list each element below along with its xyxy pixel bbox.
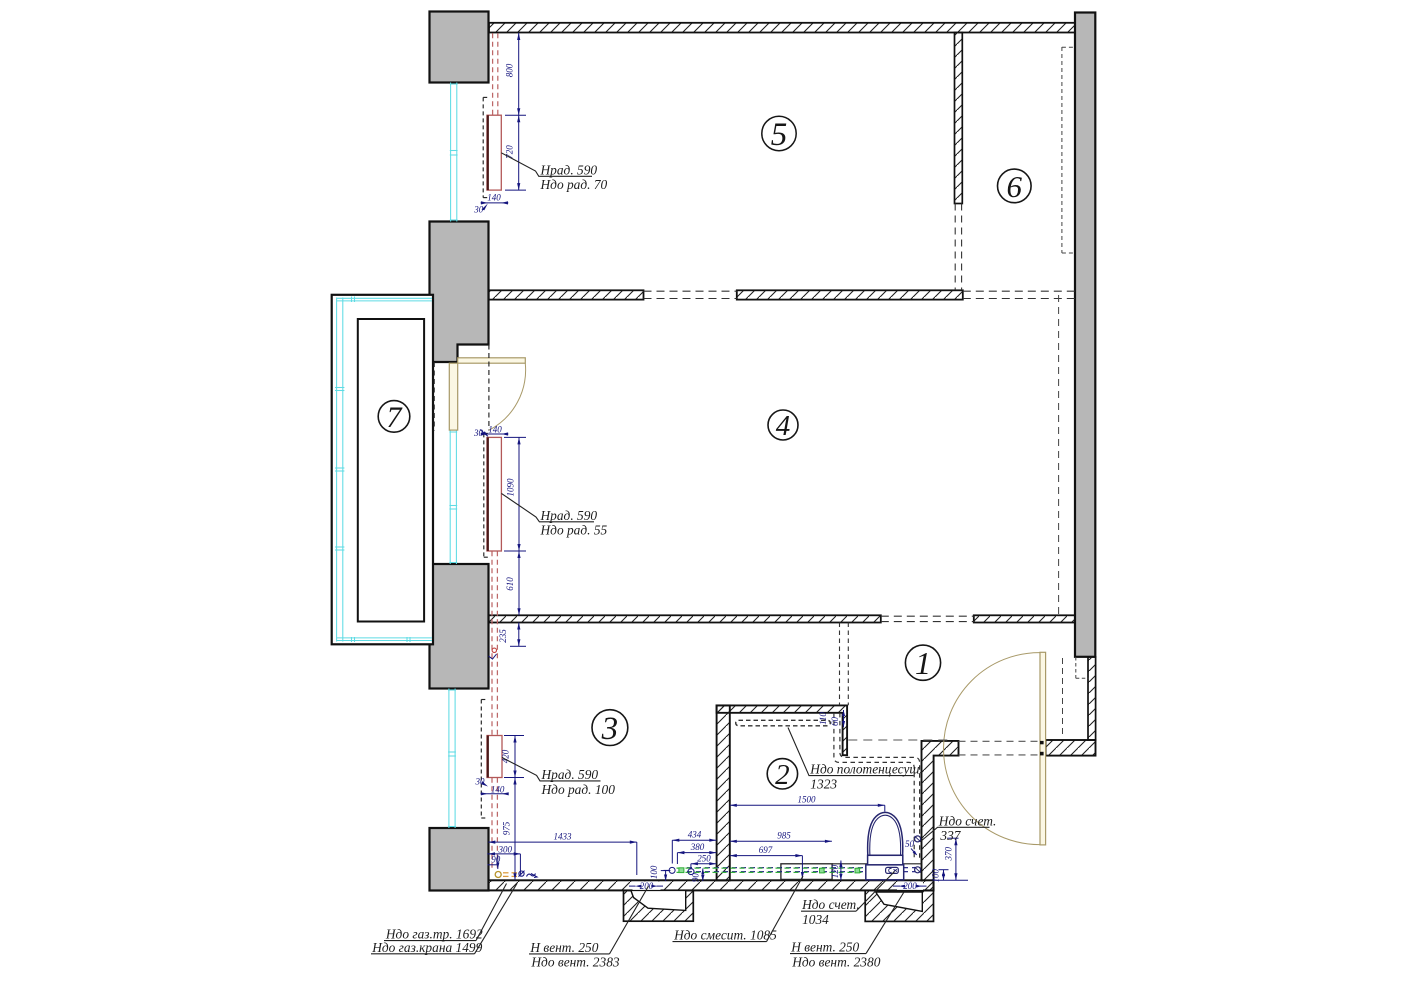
svg-text:697: 697 [759, 845, 773, 855]
svg-text:140: 140 [487, 193, 501, 203]
svg-text:Ндо счет.: Ндо счет. [801, 897, 860, 912]
svg-text:7: 7 [387, 401, 404, 434]
svg-text:Ндо смесит. 1085: Ндо смесит. 1085 [673, 928, 777, 943]
svg-text:610: 610 [505, 577, 515, 591]
svg-text:2: 2 [775, 759, 790, 791]
svg-text:1: 1 [915, 645, 931, 681]
svg-text:Н вент. 250: Н вент. 250 [790, 940, 859, 955]
svg-text:370: 370 [944, 847, 954, 862]
svg-text:110: 110 [818, 712, 828, 725]
svg-text:140: 140 [488, 424, 502, 434]
svg-text:1090: 1090 [506, 478, 516, 497]
svg-text:Ндо газ.крана 1499: Ндо газ.крана 1499 [371, 940, 482, 955]
svg-text:235: 235 [498, 629, 508, 643]
svg-text:1323: 1323 [810, 776, 837, 791]
svg-text:Ндо рад. 55: Ндо рад. 55 [540, 523, 608, 538]
svg-text:30: 30 [473, 428, 484, 438]
svg-text:140: 140 [491, 785, 505, 795]
svg-text:50: 50 [905, 839, 915, 849]
svg-text:90: 90 [691, 873, 701, 883]
svg-text:120: 120 [830, 864, 840, 878]
svg-text:Н вент. 250: Н вент. 250 [529, 940, 598, 955]
svg-text:250: 250 [697, 853, 711, 863]
svg-text:1500: 1500 [798, 794, 817, 804]
svg-text:90: 90 [491, 854, 501, 864]
svg-text:30: 30 [473, 204, 484, 214]
svg-text:Ндо рад. 70: Ндо рад. 70 [540, 177, 608, 192]
svg-text:6: 6 [1007, 169, 1023, 204]
svg-text:5: 5 [771, 117, 788, 153]
svg-text:337: 337 [939, 828, 961, 843]
svg-text:1433: 1433 [554, 831, 573, 841]
svg-text:975: 975 [502, 821, 512, 835]
svg-text:Ндо счет.: Ндо счет. [938, 813, 997, 828]
svg-text:380: 380 [690, 842, 705, 852]
svg-text:100: 100 [649, 865, 659, 879]
svg-text:200: 200 [903, 881, 917, 891]
svg-text:985: 985 [777, 830, 791, 840]
svg-text:Ндо полотенцесуш.: Ндо полотенцесуш. [809, 762, 923, 777]
svg-text:Нрад. 590: Нрад. 590 [541, 767, 599, 782]
svg-text:60: 60 [830, 717, 840, 727]
svg-text:1034: 1034 [802, 912, 829, 927]
svg-text:4: 4 [776, 410, 791, 442]
svg-text:Нрад. 590: Нрад. 590 [540, 508, 598, 523]
svg-text:434: 434 [688, 830, 702, 840]
svg-text:Нрад. 590: Нрад. 590 [540, 162, 598, 177]
svg-text:100: 100 [930, 869, 940, 883]
svg-text:Ндо вент. 2380: Ндо вент. 2380 [791, 954, 881, 969]
svg-text:30: 30 [475, 777, 486, 787]
svg-text:3: 3 [601, 711, 619, 747]
svg-text:800: 800 [505, 63, 515, 77]
svg-text:300: 300 [498, 844, 513, 854]
svg-text:Ндо рад. 100: Ндо рад. 100 [541, 782, 616, 797]
svg-text:Ндо вент. 2383: Ндо вент. 2383 [530, 955, 620, 970]
